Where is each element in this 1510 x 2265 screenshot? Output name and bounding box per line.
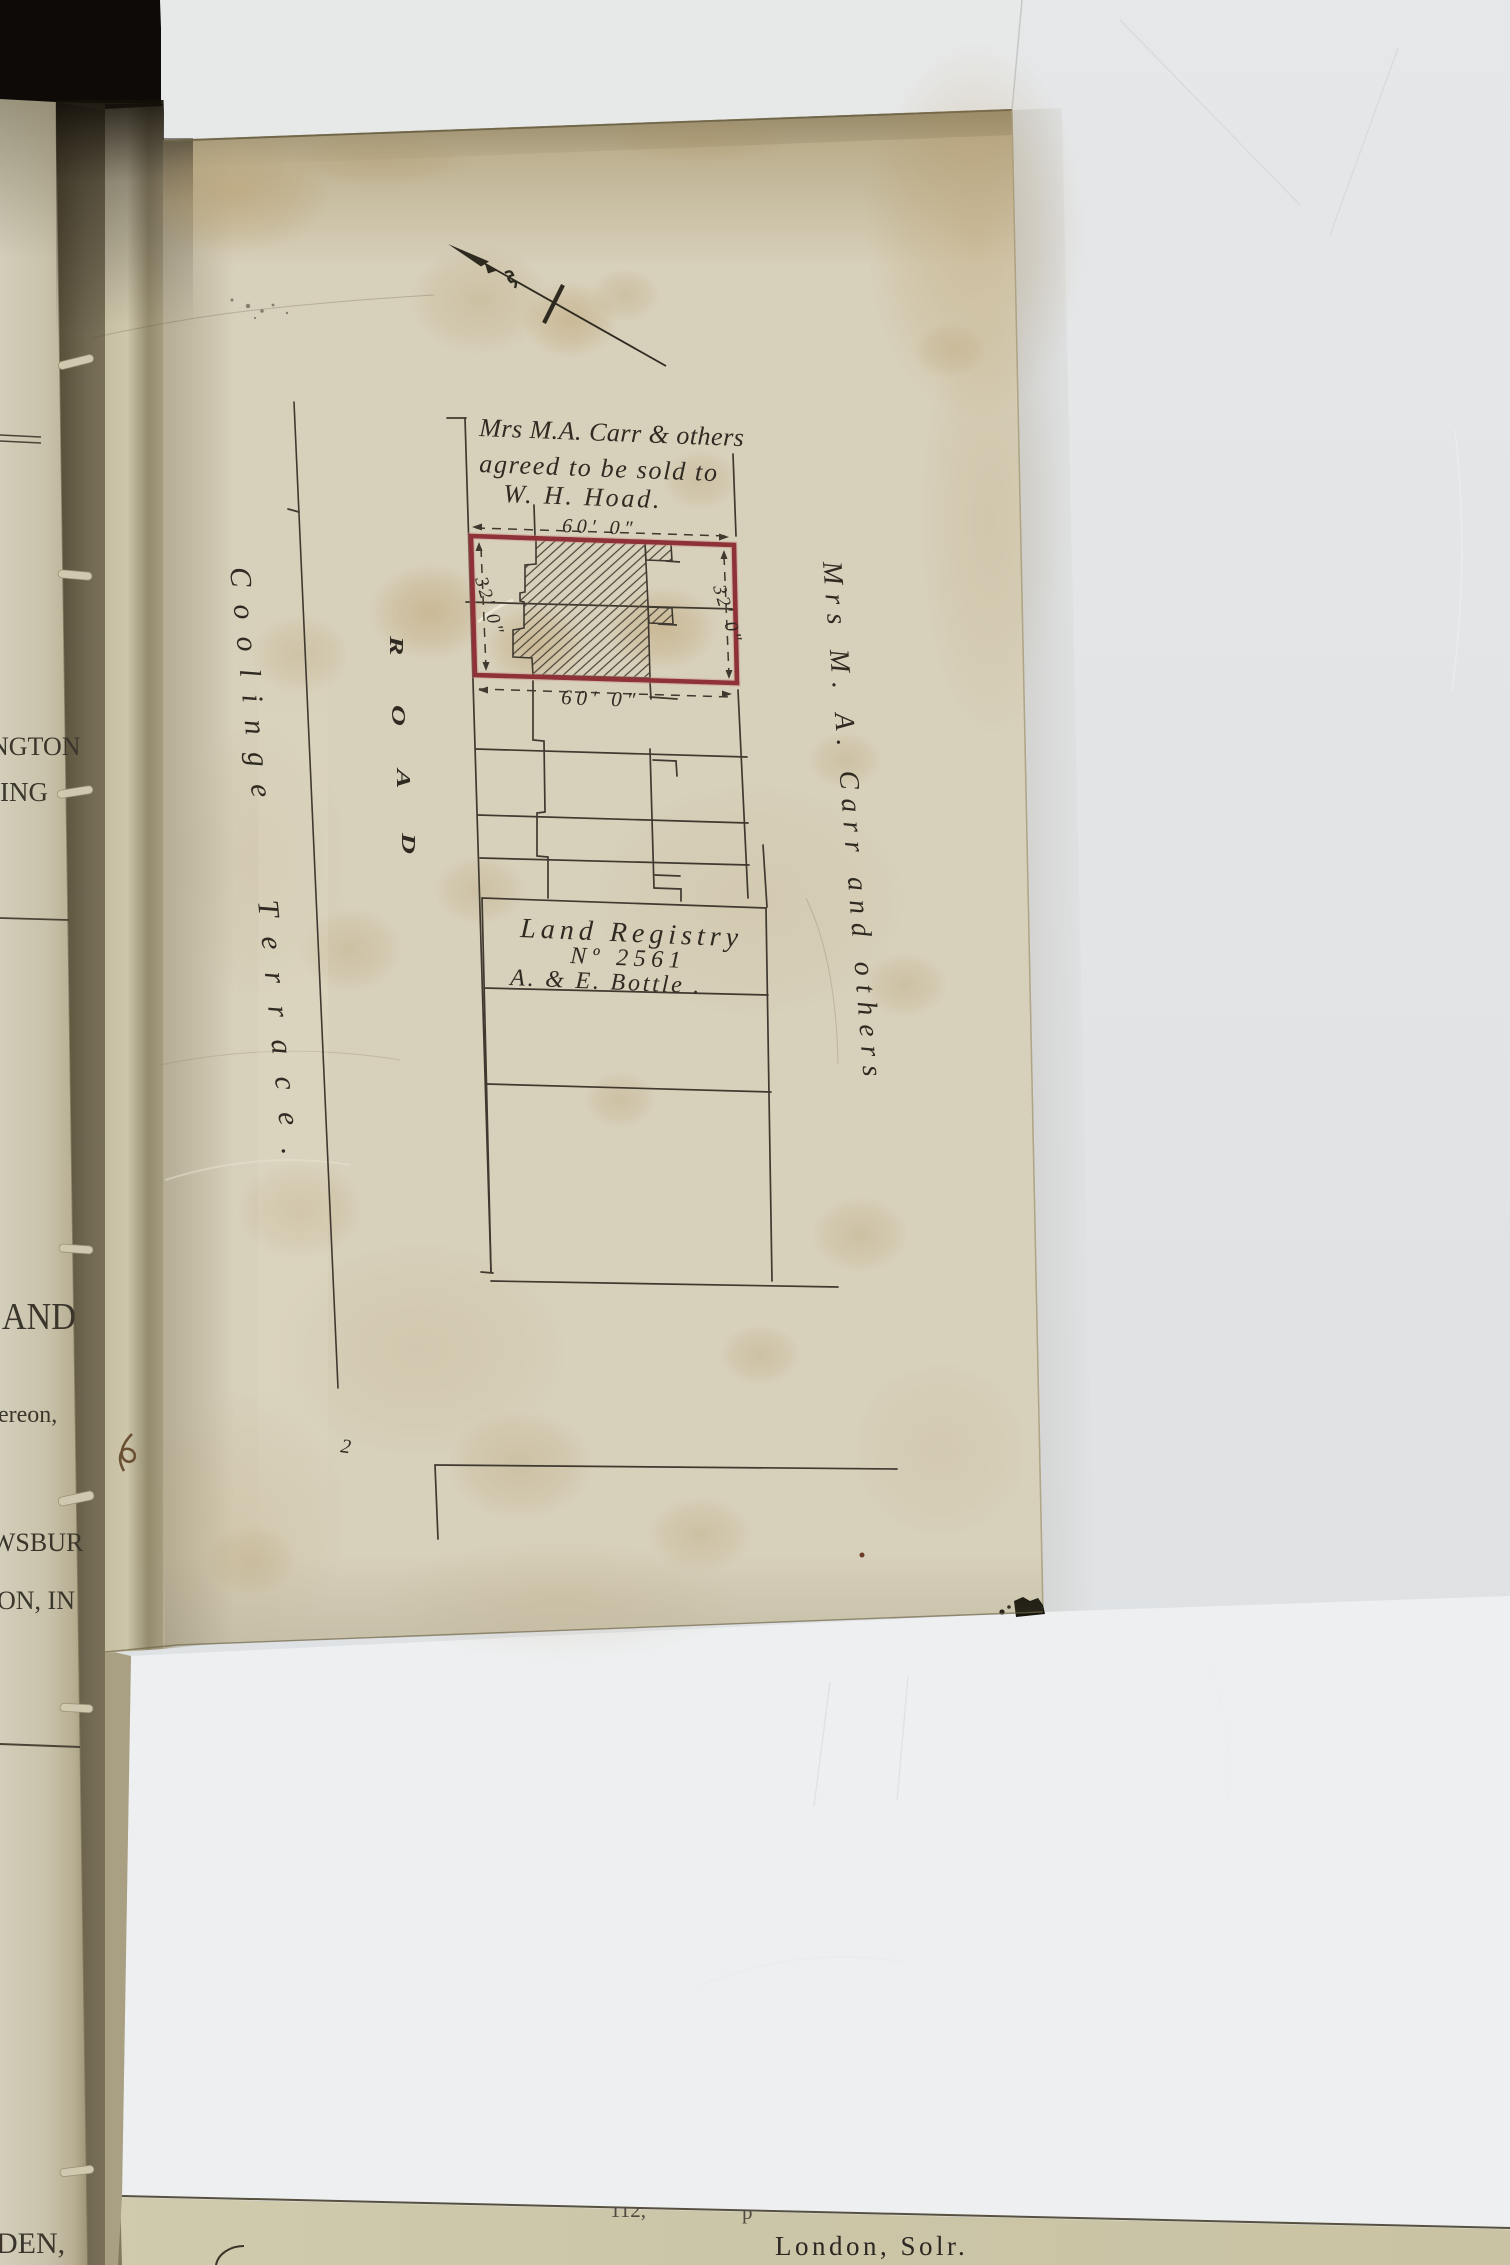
svg-text:ON, IN: ON, IN — [0, 1586, 75, 1615]
svg-text:O: O — [387, 705, 409, 726]
svg-text:LAND: LAND — [0, 1295, 76, 1337]
svg-text:A: A — [392, 767, 414, 789]
svg-text:ereon,: ereon, — [0, 1402, 57, 1428]
svg-text:60′ 0″: 60′ 0″ — [562, 515, 638, 540]
svg-text:EWSBUR: EWSBUR — [0, 1528, 84, 1557]
svg-text:London, Solr.: London, Solr. — [775, 2231, 968, 2261]
svg-text:NGTON: NGTON — [0, 732, 81, 761]
svg-text:R: R — [385, 635, 407, 656]
svg-text:ING: ING — [0, 777, 48, 807]
svg-text:DEN,: DEN, — [0, 2227, 65, 2260]
svg-text:W. H. Hoad.: W. H. Hoad. — [503, 479, 663, 514]
svg-text:D: D — [397, 832, 419, 854]
svg-text:60′ 0″: 60′ 0″ — [561, 685, 641, 712]
